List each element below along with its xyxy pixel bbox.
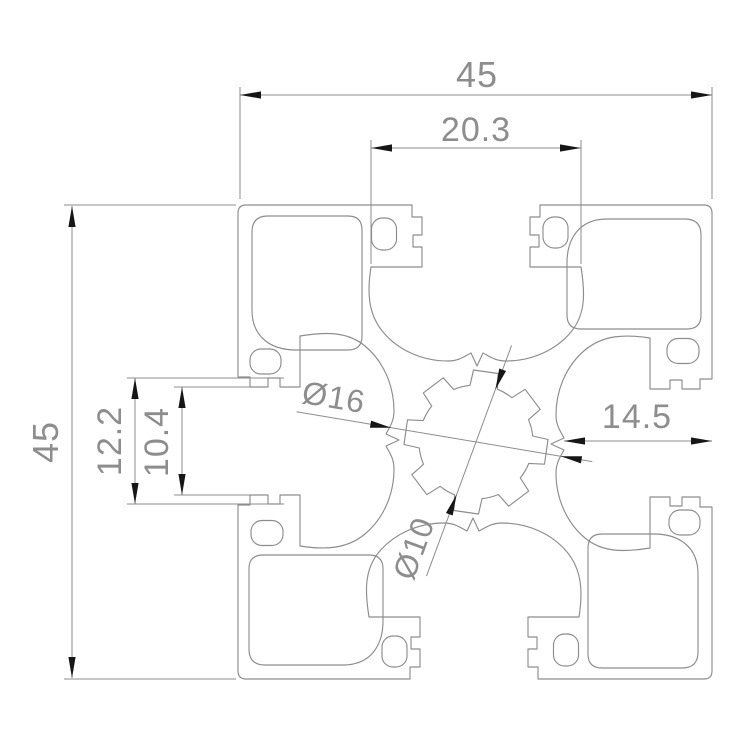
arrowhead [371, 144, 392, 151]
arrowhead [178, 387, 185, 408]
dim-overall-height-label: 45 [25, 421, 66, 463]
profile-quadrant-right [543, 213, 712, 679]
arrowhead [560, 144, 581, 151]
dim-overall-width-label: 45 [456, 54, 498, 95]
arrowhead [131, 483, 138, 504]
arrowhead [68, 206, 75, 227]
technical-drawing-canvas: 45 20.3 45 12.2 10.4 14.5 Ø16 Ø10 [0, 0, 750, 750]
dim-face-to-core-label: 14.5 [602, 398, 672, 436]
arrowhead [492, 369, 506, 391]
arrowhead [240, 91, 261, 98]
profile-quadrant-bottom [238, 510, 704, 679]
dimension-lines [72, 95, 712, 678]
arrowhead [178, 474, 185, 495]
dim-slot-opening-label: 10.4 [138, 407, 176, 477]
arrowhead [68, 657, 75, 678]
arrowhead [691, 437, 712, 444]
dim-slot-cavity-label: 20.3 [441, 111, 511, 149]
dim-core-inner-dia-label: Ø10 [386, 512, 442, 584]
profile-quadrant-top [246, 205, 712, 374]
dimension-labels: 45 20.3 45 12.2 10.4 14.5 Ø16 Ø10 [25, 54, 672, 584]
arrowhead [691, 91, 712, 98]
extrusion-profile-drawing: 45 20.3 45 12.2 10.4 14.5 Ø16 Ø10 [0, 0, 750, 750]
arrowhead [560, 453, 582, 464]
dim-core-outer-dia-label: Ø16 [300, 374, 369, 420]
leader-line-core-outer [297, 412, 593, 462]
dim-slot-notch-label: 12.2 [91, 406, 129, 476]
profile-quadrant-left [238, 205, 407, 671]
extension-lines [64, 87, 712, 679]
arrowhead [131, 378, 138, 399]
arrowhead [446, 493, 460, 515]
arrowhead [564, 437, 585, 444]
